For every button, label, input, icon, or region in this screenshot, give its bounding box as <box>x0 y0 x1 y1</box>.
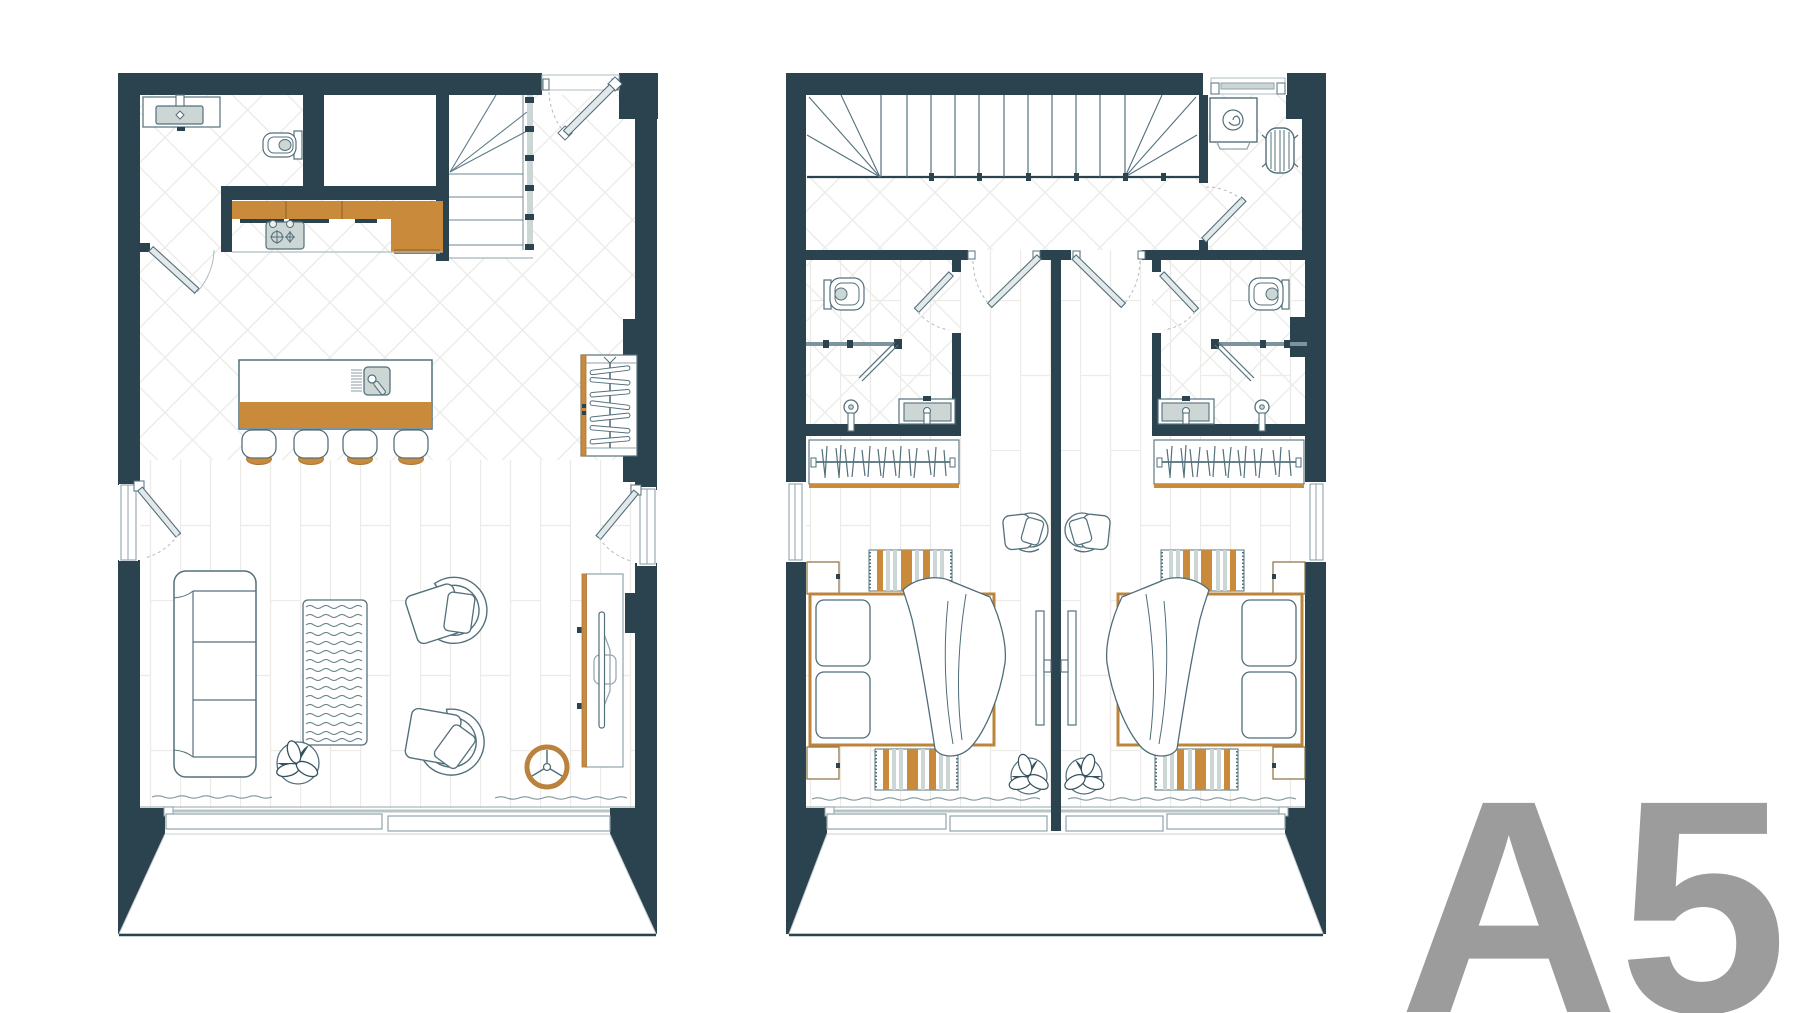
svg-text:A5: A5 <box>1399 738 1788 1013</box>
